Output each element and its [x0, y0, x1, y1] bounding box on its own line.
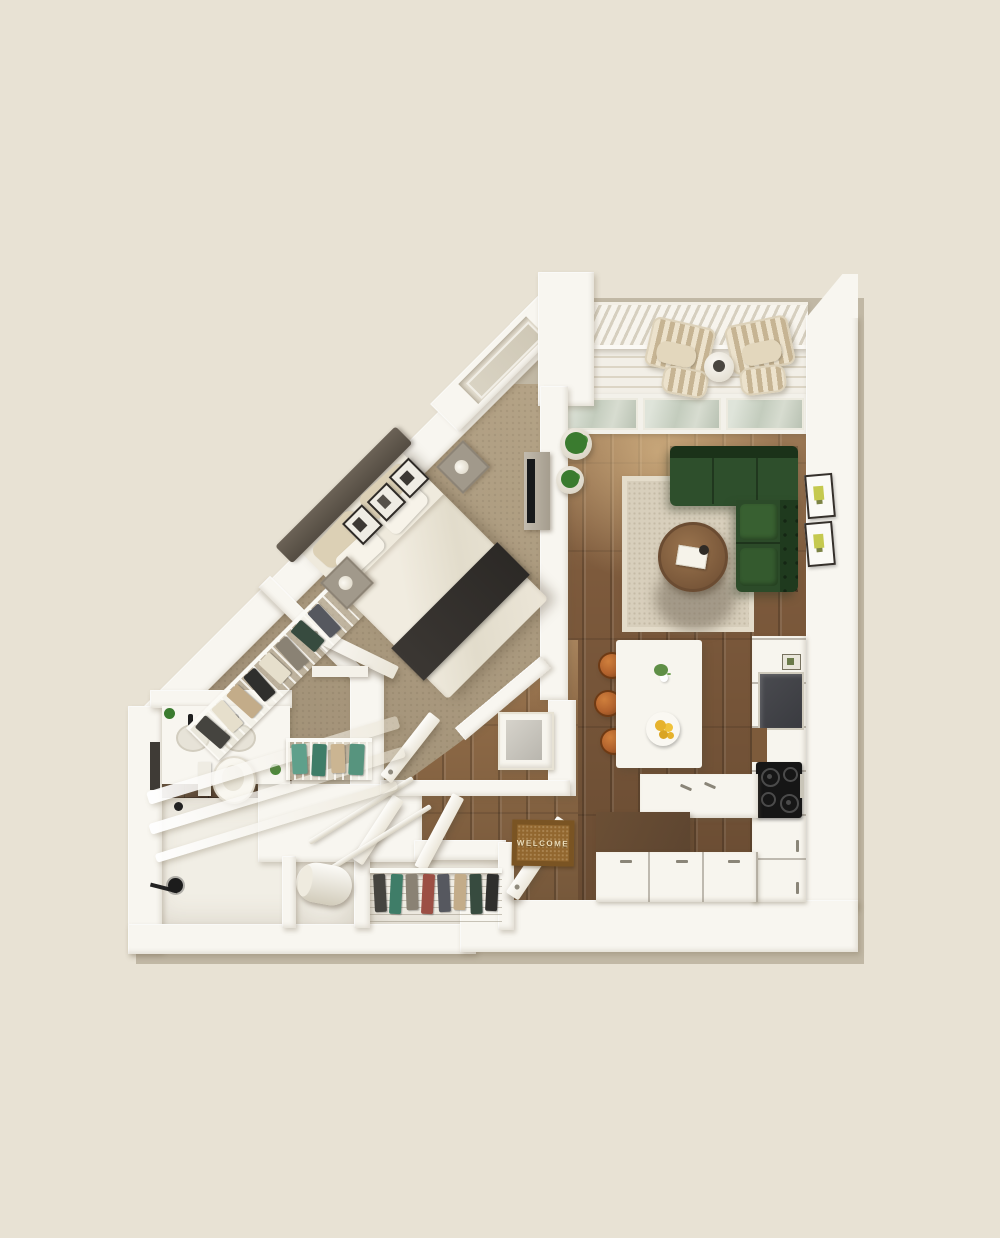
plant-foliage — [561, 470, 579, 488]
wall-right-top-cap — [806, 274, 858, 318]
utensil-rail — [800, 774, 804, 798]
balcony-side-table — [704, 352, 734, 382]
welcome-mat: WELCOME — [512, 819, 575, 866]
shower-head — [168, 878, 183, 893]
floorplan-render: WELCOME — [0, 0, 1000, 1238]
tv-screen — [527, 459, 535, 523]
counter-art — [782, 654, 801, 670]
coat-rail — [370, 868, 502, 873]
lemons — [655, 720, 666, 731]
glass-pane — [726, 398, 804, 430]
kitchen-island — [616, 640, 702, 768]
wall-bottom-right — [460, 900, 858, 952]
chair-cushion — [654, 339, 698, 369]
plant-pot-large — [560, 428, 592, 460]
chair-cushion — [740, 338, 784, 368]
sofa-sectional-back — [670, 446, 798, 506]
fruit-plate — [646, 712, 680, 746]
glass-pane — [643, 398, 721, 430]
wall-art-frame — [804, 473, 836, 519]
shower-knob — [174, 802, 183, 811]
lower-cabinet-wood — [752, 728, 767, 762]
cooktop — [756, 762, 802, 818]
table-lamp — [452, 457, 472, 477]
bathroom-mirror — [150, 742, 160, 790]
wall-bottom-left — [128, 924, 476, 954]
kitchen-counter-dark — [596, 812, 690, 854]
built-in-fridge — [758, 672, 804, 730]
laundry-unit-top — [506, 720, 542, 760]
wall-closet-divider-2 — [354, 856, 370, 928]
coat-rack-wires — [370, 874, 502, 922]
table-lamp — [336, 573, 356, 593]
wall-right — [806, 316, 858, 908]
closet-rail — [286, 738, 372, 742]
closet-rack-teal — [286, 738, 372, 780]
flowers — [654, 664, 668, 676]
plant-pot-small — [556, 466, 584, 494]
sofa-sectional-chaise — [736, 500, 798, 592]
kitchen-base-cabinets — [596, 852, 758, 902]
plant-foliage — [565, 432, 587, 454]
bedroom-floating-shelf — [312, 666, 368, 677]
table-plant — [713, 360, 725, 372]
wall-heater-divider — [282, 856, 296, 928]
wall-art-frame — [804, 521, 836, 567]
welcome-mat-label: WELCOME — [517, 825, 570, 862]
vanity-plant — [164, 708, 175, 719]
bedroom-tv-console — [524, 452, 550, 530]
coffee-table — [658, 522, 728, 592]
table-bowl — [699, 545, 709, 555]
laundry-unit — [498, 712, 554, 770]
